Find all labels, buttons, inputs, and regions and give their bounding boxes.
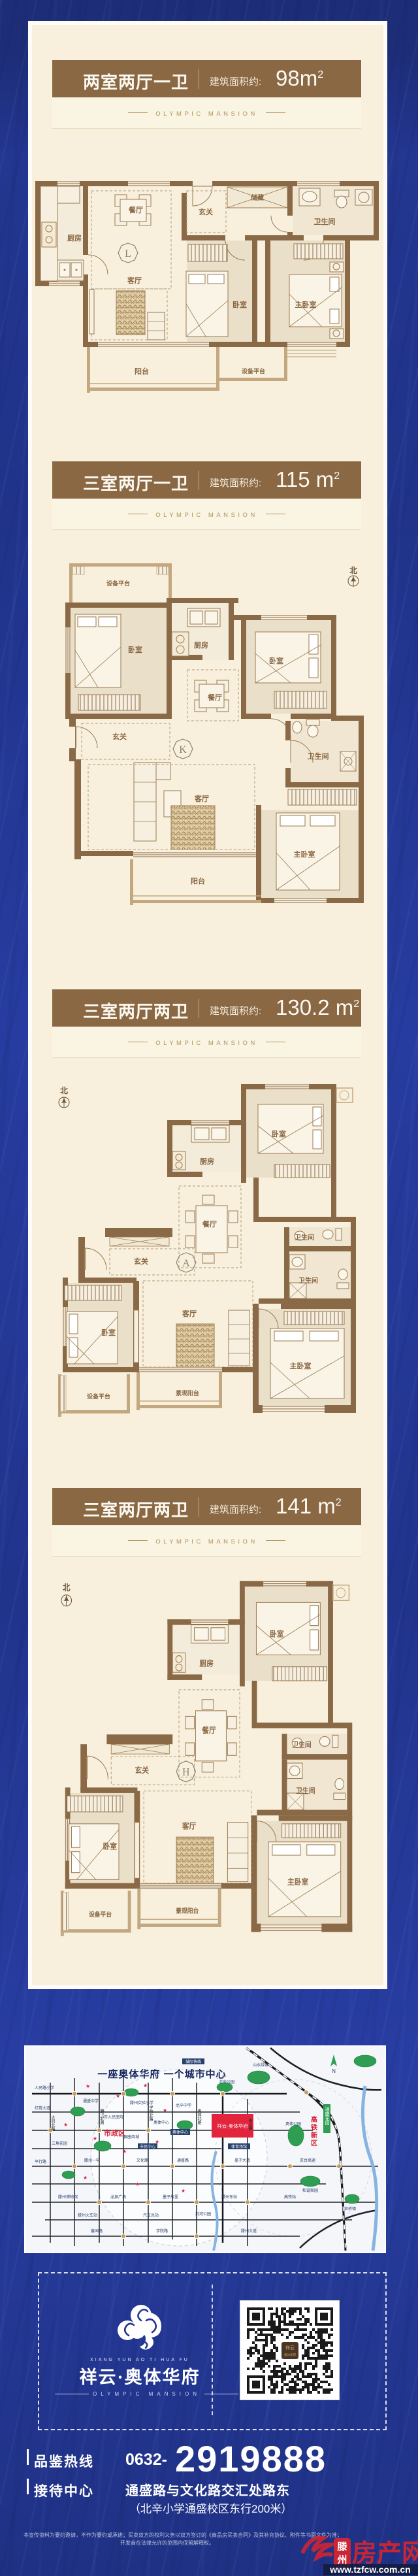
svg-text:滕州一中: 滕州一中 bbox=[84, 2158, 100, 2163]
svg-text:www.tzfcw.com.cn: www.tzfcw.com.cn bbox=[329, 2564, 410, 2575]
svg-text:客厅: 客厅 bbox=[182, 1821, 196, 1831]
svg-text:和谐家园: 和谐家园 bbox=[302, 2188, 318, 2193]
svg-text:玄关: 玄关 bbox=[112, 732, 127, 741]
svg-text:餐厅: 餐厅 bbox=[207, 693, 222, 702]
svg-text:学院路: 学院路 bbox=[156, 2228, 168, 2234]
svg-text:北: 北 bbox=[60, 1085, 68, 1095]
svg-text:卫生间: 卫生间 bbox=[308, 751, 329, 761]
svg-text:高铁站: 高铁站 bbox=[284, 2194, 296, 2200]
svg-text:客厅: 客厅 bbox=[127, 276, 142, 285]
svg-text:三角花园: 三角花园 bbox=[52, 2141, 67, 2146]
svg-text:城际快线: 城际快线 bbox=[185, 2059, 201, 2064]
svg-text:奥体中心: 奥体中心 bbox=[153, 2120, 169, 2125]
svg-text:卧室: 卧室 bbox=[128, 645, 142, 654]
svg-text:厨房: 厨房 bbox=[194, 640, 208, 650]
svg-text:通盛花园: 通盛花园 bbox=[325, 2106, 330, 2126]
svg-text:善国路: 善国路 bbox=[91, 2228, 103, 2234]
svg-text:主卧室: 主卧室 bbox=[295, 300, 317, 309]
svg-text:平行路: 平行路 bbox=[35, 2159, 46, 2164]
svg-text:★: ★ bbox=[143, 2083, 148, 2089]
svg-text:祥云·奥体华府: 祥云·奥体华府 bbox=[217, 2122, 248, 2129]
svg-text:景观阳台: 景观阳台 bbox=[175, 1907, 199, 1914]
svg-text:卧室: 卧室 bbox=[272, 1129, 286, 1138]
svg-text:滕州东站: 滕州东站 bbox=[221, 2194, 237, 2200]
svg-text:滕: 滕 bbox=[337, 2541, 347, 2552]
svg-text:奥体华府: 奥体华府 bbox=[284, 2353, 296, 2357]
svg-text:滕州实验小学: 滕州实验小学 bbox=[130, 2100, 153, 2105]
svg-text:卧室: 卧室 bbox=[269, 656, 283, 665]
svg-text:设备平台: 设备平台 bbox=[87, 1393, 110, 1400]
svg-text:市人民医院: 市人民医院 bbox=[104, 2115, 123, 2120]
svg-text:市民中心: 市民中心 bbox=[140, 2144, 155, 2149]
svg-text:通盛中学: 通盛中学 bbox=[83, 2098, 99, 2104]
svg-text:★: ★ bbox=[163, 2107, 167, 2113]
svg-text:红荷大道: 红荷大道 bbox=[35, 2105, 50, 2111]
svg-text:玄关: 玄关 bbox=[135, 1765, 149, 1775]
svg-text:卫生间: 卫生间 bbox=[292, 1740, 311, 1749]
svg-text:大同北路: 大同北路 bbox=[50, 2115, 55, 2132]
svg-text:★: ★ bbox=[116, 2093, 120, 2099]
svg-text:房产网: 房产网 bbox=[352, 2540, 418, 2568]
svg-text:官桥镇: 官桥镇 bbox=[344, 2206, 356, 2211]
svg-text:储藏: 储藏 bbox=[250, 193, 264, 202]
svg-text:N: N bbox=[332, 2068, 336, 2074]
svg-text:阳台: 阳台 bbox=[191, 876, 205, 885]
svg-text:★: ★ bbox=[181, 2188, 185, 2194]
svg-text:★: ★ bbox=[63, 2122, 68, 2128]
svg-text:主卧室: 主卧室 bbox=[290, 1361, 312, 1370]
svg-text:★: ★ bbox=[135, 2181, 140, 2187]
svg-text:设备平台: 设备平台 bbox=[89, 1911, 112, 1918]
svg-text:奥体公园: 奥体公园 bbox=[285, 2121, 301, 2126]
svg-text:山水绿城: 山水绿城 bbox=[253, 2062, 268, 2068]
svg-text:卫生间: 卫生间 bbox=[295, 1233, 314, 1242]
svg-text:厨房: 厨房 bbox=[199, 1659, 214, 1668]
svg-text:餐厅: 餐厅 bbox=[128, 205, 143, 214]
svg-text:滕州火车站: 滕州火车站 bbox=[78, 2213, 97, 2218]
svg-text:祥云: 祥云 bbox=[285, 2345, 295, 2351]
svg-text:北: 北 bbox=[349, 565, 357, 575]
svg-text:腾飞北路: 腾飞北路 bbox=[99, 2108, 104, 2125]
svg-text:L: L bbox=[125, 248, 131, 259]
svg-text:墨子故里: 墨子故里 bbox=[163, 2194, 178, 2200]
svg-text:高铁新区: 高铁新区 bbox=[310, 2115, 317, 2147]
svg-text:厨房: 厨房 bbox=[200, 1157, 214, 1166]
svg-text:主卧室: 主卧室 bbox=[294, 850, 315, 859]
svg-text:奥体中心: 奥体中心 bbox=[172, 2130, 188, 2135]
svg-text:龙泉广场: 龙泉广场 bbox=[110, 2194, 126, 2200]
svg-text:客厅: 客厅 bbox=[182, 1309, 197, 1318]
svg-text:A: A bbox=[182, 1258, 190, 1269]
svg-text:通盛路: 通盛路 bbox=[177, 2158, 189, 2163]
svg-text:设备平台: 设备平台 bbox=[242, 367, 265, 374]
svg-text:餐厅: 餐厅 bbox=[201, 1726, 216, 1736]
svg-text:卫生间: 卫生间 bbox=[314, 217, 336, 226]
svg-text:★: ★ bbox=[93, 2136, 97, 2141]
svg-text:文化路: 文化路 bbox=[137, 2158, 148, 2163]
svg-text:北辛公园: 北辛公园 bbox=[219, 2079, 234, 2085]
svg-text:★: ★ bbox=[122, 2149, 127, 2155]
svg-text:汽车总站: 汽车总站 bbox=[143, 2213, 159, 2218]
svg-text:青山路: 青山路 bbox=[248, 2118, 252, 2131]
svg-text:京台高速: 京台高速 bbox=[300, 2158, 315, 2163]
svg-text:卧室: 卧室 bbox=[233, 300, 247, 309]
svg-text:学院北路: 学院北路 bbox=[148, 2105, 153, 2122]
svg-text:景观阳台: 景观阳台 bbox=[176, 1389, 199, 1396]
svg-text:北辛中学: 北辛中学 bbox=[176, 2103, 191, 2108]
svg-text:卧室: 卧室 bbox=[101, 1328, 116, 1337]
svg-text:滕州大道: 滕州大道 bbox=[241, 2228, 257, 2234]
svg-text:卫生间: 卫生间 bbox=[296, 1787, 315, 1796]
svg-text:主卧室: 主卧室 bbox=[287, 1877, 308, 1887]
svg-text:厨房: 厨房 bbox=[67, 233, 82, 242]
svg-text:K: K bbox=[179, 744, 187, 755]
svg-text:H: H bbox=[182, 1766, 189, 1779]
svg-text:客厅: 客厅 bbox=[194, 794, 209, 803]
svg-text:★: ★ bbox=[83, 2175, 88, 2181]
svg-text:体育场馆: 体育场馆 bbox=[231, 2144, 247, 2149]
svg-text:卧室: 卧室 bbox=[270, 1629, 284, 1639]
svg-text:人民路小学: 人民路小学 bbox=[35, 2085, 54, 2090]
svg-text:滕州博物馆: 滕州博物馆 bbox=[58, 2194, 78, 2200]
svg-text:一座奥体华府 一个城市中心: 一座奥体华府 一个城市中心 bbox=[97, 2068, 226, 2080]
svg-text:卧室: 卧室 bbox=[103, 1841, 118, 1851]
svg-text:市政区: 市政区 bbox=[104, 2128, 125, 2138]
svg-text:奥体北路: 奥体北路 bbox=[197, 2108, 201, 2125]
svg-text:银座商城: 银座商城 bbox=[123, 2134, 139, 2139]
svg-text:墨子大道: 墨子大道 bbox=[234, 2158, 250, 2163]
svg-text:玄关: 玄关 bbox=[134, 1257, 148, 1266]
svg-text:设备平台: 设备平台 bbox=[106, 580, 130, 587]
svg-text:玄关: 玄关 bbox=[199, 207, 213, 216]
svg-text:★: ★ bbox=[86, 2083, 90, 2089]
svg-text:阳台: 阳台 bbox=[135, 367, 149, 376]
svg-text:卫生间: 卫生间 bbox=[298, 1276, 318, 1285]
svg-text:荆河公园: 荆河公园 bbox=[195, 2211, 211, 2217]
svg-text:北: 北 bbox=[63, 1583, 71, 1593]
svg-text:餐厅: 餐厅 bbox=[202, 1219, 217, 1229]
